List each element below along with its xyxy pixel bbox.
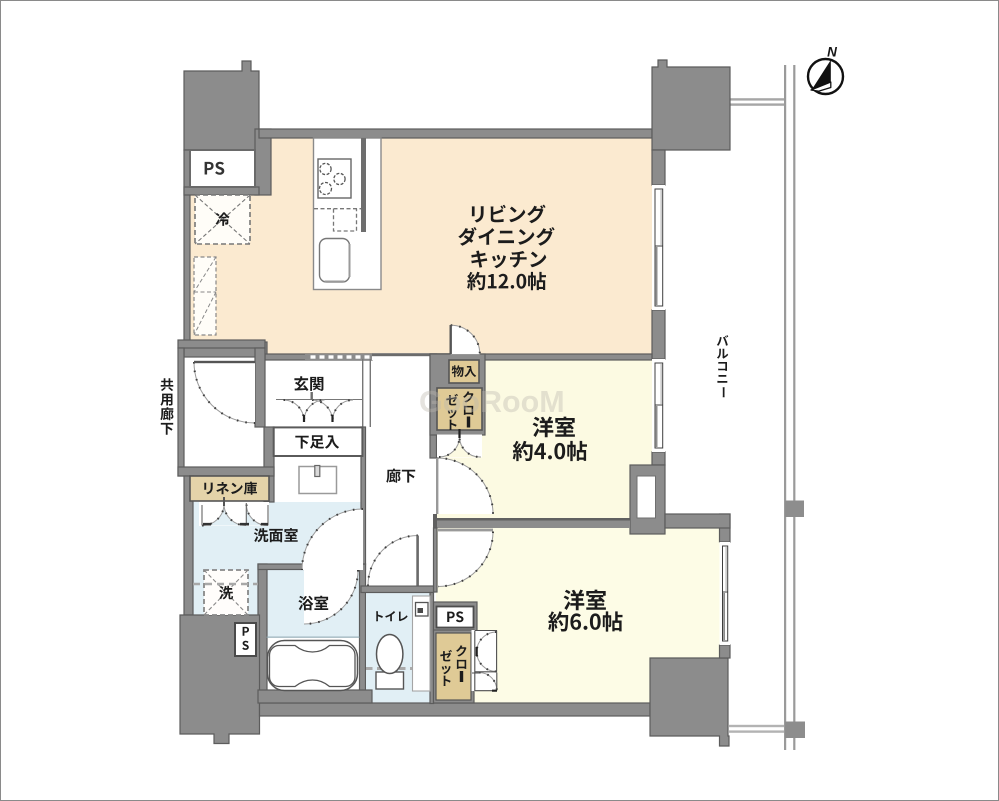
svg-text:N: N: [827, 45, 837, 60]
svg-text:GooRooM: GooRooM: [419, 385, 565, 419]
